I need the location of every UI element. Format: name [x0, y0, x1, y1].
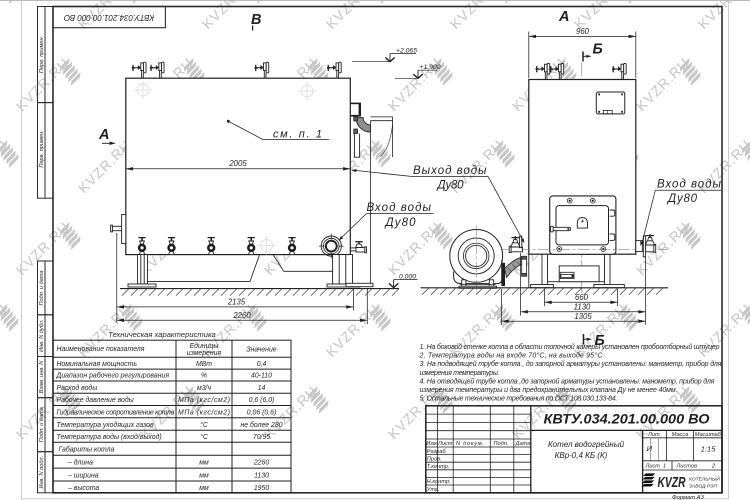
svg-text:И: И [647, 444, 653, 453]
svg-text:960: 960 [576, 27, 590, 36]
svg-text:Взам. инв. N: Взам. инв. N [39, 360, 45, 394]
svg-text:Ду80: Ду80 [384, 217, 417, 229]
svg-text:измерения температуры и два пр: измерения температуры и два предохраните… [420, 386, 678, 394]
svg-text:Инв. N дубл.: Инв. N дубл. [39, 320, 45, 352]
svg-text:Техническая характеристика: Техническая характеристика [108, 330, 216, 339]
svg-text:Лит.: Лит. [647, 432, 661, 438]
svg-text:Масса: Масса [672, 432, 689, 438]
svg-text:Подп. и дата: Подп. и дата [39, 407, 45, 442]
svg-text:Лист: Лист [437, 441, 453, 447]
svg-text:измерения: измерения [187, 350, 222, 357]
svg-text:Листов: Листов [676, 463, 697, 469]
svg-text:Габариты котла: Габариты котла [59, 446, 115, 454]
svg-text:0.000: 0.000 [399, 273, 416, 280]
svg-text:Разраб.: Разраб. [427, 449, 447, 455]
svg-text:N докум.: N докум. [456, 441, 484, 447]
svg-text:МВт: МВт [196, 361, 212, 368]
svg-text:Значение: Значение [246, 347, 276, 354]
svg-text:Подп.: Подп. [494, 441, 509, 447]
svg-text:14: 14 [258, 385, 266, 392]
svg-text:660: 660 [575, 293, 589, 302]
svg-text:Ду80: Ду80 [436, 180, 465, 192]
svg-text:мм: мм [199, 460, 209, 467]
svg-text:2. Температура воды на входе: 2. Температура воды на входе 70°С, на вы… [419, 352, 605, 360]
svg-text:2260: 2260 [232, 311, 251, 320]
svg-text:Масштаб: Масштаб [695, 432, 722, 438]
svg-text:Номинальная мощность: Номинальная мощность [57, 361, 138, 368]
svg-text:0,4: 0,4 [257, 361, 267, 368]
svg-text:%: % [201, 373, 207, 380]
svg-text:не более 280: не более 280 [240, 421, 282, 429]
svg-text:+1.900: +1.900 [420, 64, 441, 71]
svg-text:МПа (кгс/см2): МПа (кгс/см2) [178, 397, 230, 404]
svg-text:2135: 2135 [227, 298, 246, 307]
svg-text:– высота: – высота [67, 485, 99, 492]
svg-text:1. На боковой стенке котла в: 1. На боковой стенке котла в области топ… [420, 343, 720, 351]
svg-text:Котел водогрейный: Котел водогрейный [548, 440, 625, 449]
svg-text:мм: мм [199, 485, 209, 492]
svg-text:3. На подводящей трубе котла: 3. На подводящей трубе котла , до запорн… [420, 360, 722, 368]
svg-text:0,06 (0,6): 0,06 (0,6) [247, 409, 277, 416]
svg-text:Т.контр.: Т.контр. [427, 464, 450, 470]
svg-text:KVZR: KVZR [658, 474, 686, 491]
svg-text:А: А [558, 9, 569, 25]
svg-text:4. На отводящей трубе котла ,: 4. На отводящей трубе котла ,до запорной… [420, 377, 715, 385]
svg-text:°С: °С [200, 433, 209, 441]
svg-text:измерения температуры.: измерения температуры. [420, 370, 500, 377]
svg-text:Гидравлическое сопротивление к: Гидравлическое сопротивление котла [57, 408, 175, 416]
svg-text:ЗАВОД РЭП: ЗАВОД РЭП [689, 483, 718, 489]
svg-text:Изм.: Изм. [426, 441, 438, 447]
svg-text:Ду80: Ду80 [666, 193, 698, 205]
svg-text:Диапазон рабочего регулировани: Диапазон рабочего регулирования [56, 372, 170, 380]
svg-text:КВр-0,4 КБ (К): КВр-0,4 КБ (К) [555, 451, 608, 460]
svg-text:2260: 2260 [253, 460, 269, 467]
svg-text:м3/ч: м3/ч [197, 385, 211, 392]
svg-text:Перв. примен.: Перв. примен. [39, 36, 45, 73]
svg-text:70/95: 70/95 [253, 434, 270, 441]
svg-text:МПа (кгс/см2): МПа (кгс/см2) [178, 409, 230, 416]
svg-text:1130: 1130 [574, 303, 591, 312]
svg-text:КВТУ.034.201.00.000 ВО: КВТУ.034.201.00.000 ВО [64, 13, 154, 22]
svg-text:КВТУ.034.201.00.000 ВО: КВТУ.034.201.00.000 ВО [544, 412, 710, 427]
svg-text:5. Остальные технические треб: 5. Остальные технические требования по О… [420, 395, 618, 403]
svg-text:мм: мм [199, 473, 209, 480]
svg-text:Вход воды: Вход воды [367, 202, 432, 214]
svg-text:Инв. N подл.: Инв. N подл. [39, 456, 45, 489]
svg-text:1:15: 1:15 [701, 444, 716, 453]
svg-text:Н.контр.: Н.контр. [427, 479, 451, 485]
svg-text:Утв.: Утв. [426, 487, 440, 493]
svg-text:2005: 2005 [228, 159, 247, 168]
svg-text:Перв. примен.: Перв. примен. [39, 130, 45, 167]
svg-text:1305: 1305 [574, 312, 592, 321]
svg-text:– длина: – длина [67, 459, 93, 467]
svg-text:Дата: Дата [515, 441, 531, 447]
svg-text:Температура воды (вход/выход): Температура воды (вход/выход) [57, 433, 162, 441]
svg-text:А: А [98, 127, 109, 143]
svg-text:1950: 1950 [254, 485, 269, 492]
svg-text:°С: °С [200, 421, 209, 429]
svg-text:Формат А3: Формат А3 [672, 495, 704, 500]
svg-text:Температура уходящих газов: Температура уходящих газов [57, 421, 155, 429]
svg-text:– ширина: – ширина [67, 473, 99, 480]
svg-text:Пров.: Пров. [427, 456, 442, 462]
svg-text:Рабочее давление воды: Рабочее давление воды [57, 396, 134, 404]
svg-text:1130: 1130 [254, 473, 269, 480]
svg-text:Вход воды: Вход воды [657, 179, 722, 191]
svg-text:Лист: Лист [645, 463, 661, 469]
svg-text:Единицы: Единицы [190, 342, 219, 350]
svg-text:1: 1 [663, 463, 666, 469]
svg-text:0,6 (6,0): 0,6 (6,0) [249, 397, 275, 404]
svg-text:Выход воды: Выход воды [413, 165, 487, 177]
svg-text:Б: Б [593, 42, 603, 58]
svg-text:Расход воды: Расход воды [57, 384, 98, 392]
svg-text:+2.065: +2.065 [396, 47, 417, 54]
svg-text:40-110: 40-110 [251, 373, 272, 380]
svg-text:Подп. и дата: Подп. и дата [39, 270, 45, 305]
svg-text:Наименование показателя: Наименование показателя [57, 346, 145, 353]
